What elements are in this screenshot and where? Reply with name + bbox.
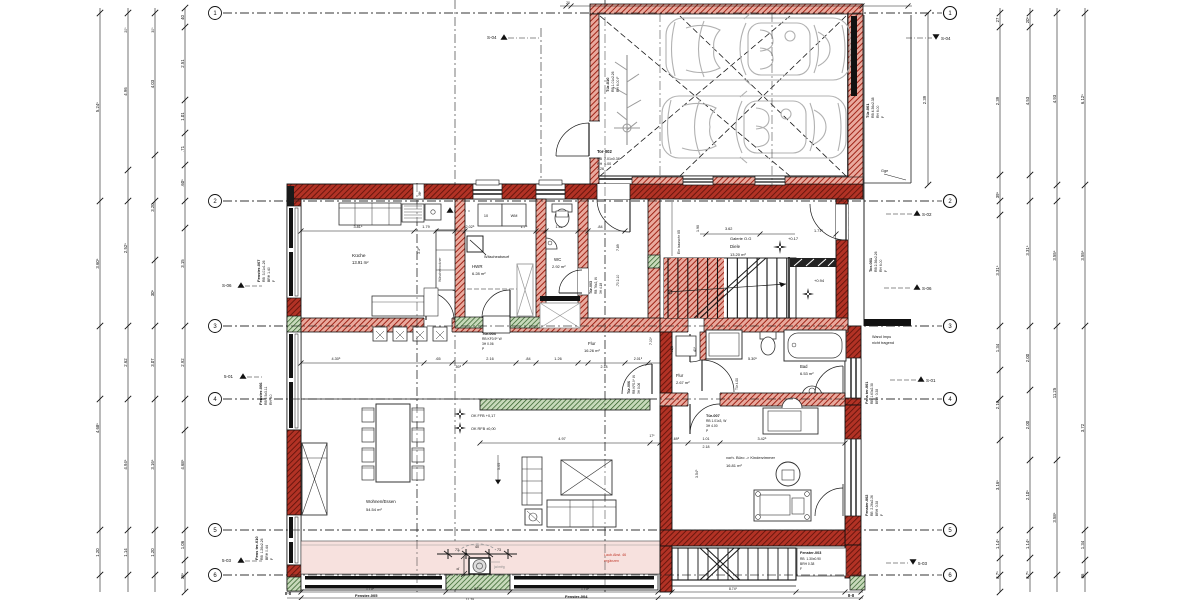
svg-text:3.31⁵: 3.31⁵ (1025, 245, 1030, 255)
svg-text:3.62: 3.62 (725, 227, 732, 231)
svg-text:8.74⁵: 8.74⁵ (474, 587, 483, 591)
svg-text:3.07: 3.07 (150, 358, 155, 367)
svg-text:RH 6.00: RH 6.00 (876, 105, 880, 118)
svg-text:Tür-001: Tür-001 (865, 103, 870, 118)
svg-text:1.26: 1.26 (554, 357, 561, 361)
svg-text:2.67 m²: 2.67 m² (676, 380, 690, 385)
svg-text:13.20 m²: 13.20 m² (730, 252, 746, 257)
svg-text:Wäschetrockner: Wäschetrockner (438, 257, 442, 282)
svg-text:6.28 m²: 6.28 m² (472, 271, 486, 276)
svg-text:5.24⁵: 5.24⁵ (95, 102, 100, 112)
svg-text:1.34: 1.34 (995, 343, 1000, 352)
svg-text:.71: .71 (180, 145, 185, 152)
svg-text:1.01: 1.01 (703, 437, 710, 441)
svg-text:1.01: 1.01 (180, 112, 185, 121)
svg-text:5-01: 5-01 (224, 374, 234, 379)
svg-text:8,: 8, (456, 567, 460, 570)
svg-text:3.55⁵: 3.55⁵ (1080, 250, 1085, 260)
svg-text:Wand Impu: Wand Impu (872, 335, 891, 339)
svg-text:27: 27 (995, 17, 1000, 22)
svg-text:3.60⁵: 3.60⁵ (95, 258, 100, 268)
svg-text:BRH 0.38: BRH 0.38 (875, 501, 879, 516)
svg-text:RB 2.26x2.26: RB 2.26x2.26 (870, 495, 874, 516)
svg-text:5.30⁵: 5.30⁵ (748, 357, 757, 361)
svg-text:F: F (272, 280, 276, 282)
svg-text:4.03: 4.03 (150, 79, 155, 88)
svg-text:Wäscheabwurf: Wäscheabwurf (484, 255, 510, 259)
svg-text:30⁵: 30⁵ (150, 290, 155, 297)
svg-text:6.12⁵: 6.12⁵ (1080, 94, 1085, 104)
svg-text:II-II: II-II (848, 593, 854, 598)
svg-text:8.7⁵: 8.7⁵ (995, 571, 1000, 579)
svg-text:Fens ter-001: Fens ter-001 (865, 382, 869, 404)
svg-text:RB 1.26x2.26: RB 1.26x2.26 (260, 538, 264, 560)
svg-text:Tür-004: Tür-004 (482, 332, 497, 336)
svg-text:20⁵: 20⁵ (1025, 17, 1030, 24)
svg-text:WM: WM (511, 214, 518, 218)
svg-text:RB 4.36x2.38: RB 4.36x2.38 (871, 97, 875, 118)
svg-text:8.7⁵: 8.7⁵ (1025, 571, 1030, 579)
svg-text:3.55⁵: 3.55⁵ (1052, 250, 1057, 260)
svg-text:30⁵: 30⁵ (151, 27, 155, 33)
svg-text:3.20: 3.20 (150, 203, 155, 212)
svg-text:13.91 m²: 13.91 m² (352, 260, 369, 265)
svg-text:2.01⁵: 2.01⁵ (634, 357, 643, 361)
svg-text:3.72: 3.72 (1080, 423, 1085, 432)
svg-text:5-05: 5-05 (497, 463, 501, 470)
svg-text:Flur: Flur (588, 341, 596, 346)
svg-text:2.10: 2.10 (995, 400, 1000, 409)
svg-text:2.92 m²: 2.92 m² (552, 264, 566, 269)
svg-text:6.53 m²: 6.53 m² (800, 371, 814, 376)
svg-text:RB 1.01x3, W: RB 1.01x3, W (706, 419, 727, 423)
svg-text:73⁳: 73⁳ (455, 548, 459, 552)
svg-text:Küche: Küche (352, 253, 366, 259)
svg-text:Tür 4.00: Tür 4.00 (735, 378, 739, 390)
svg-text:36⁵: 36⁵ (180, 573, 185, 580)
svg-text:F: F (881, 116, 885, 118)
svg-text:1.71⁵: 1.71⁵ (814, 229, 823, 233)
svg-text:40: 40 (475, 545, 479, 549)
svg-text:Fenster-007: Fenster-007 (256, 259, 261, 282)
svg-text:Diele: Diele (730, 244, 741, 249)
svg-text:S-02: S-02 (922, 212, 932, 217)
svg-text:nicht tragend: nicht tragend (872, 341, 894, 345)
svg-text:3H 0.06: 3H 0.06 (637, 383, 641, 394)
svg-text:20⁵: 20⁵ (124, 27, 128, 33)
svg-text:RB KF0.9⁵ W: RB KF0.9⁵ W (632, 375, 636, 394)
svg-text:4.68⁵: 4.68⁵ (95, 423, 100, 433)
svg-text:3.42⁵: 3.42⁵ (758, 437, 767, 441)
svg-text:.84: .84 (597, 225, 602, 229)
svg-text:Tür-003: Tür-003 (589, 281, 593, 294)
svg-text:OK RFB ±0,00: OK RFB ±0,00 (471, 427, 496, 431)
svg-text:BRH 1.40: BRH 1.40 (267, 267, 271, 282)
svg-text:7.89: 7.89 (616, 244, 620, 251)
svg-text:ergänzen: ergänzen (604, 559, 619, 563)
svg-text:2.92: 2.92 (180, 358, 185, 367)
svg-text:40⁵: 40⁵ (693, 346, 697, 352)
svg-text:1.14⁵: 1.14⁵ (1025, 539, 1030, 549)
svg-text:1.20: 1.20 (95, 548, 100, 557)
svg-text:Fenster-003: Fenster-003 (800, 551, 821, 555)
svg-text:5-03: 5-03 (918, 561, 928, 566)
svg-text:3.16⁵: 3.16⁵ (150, 459, 155, 469)
svg-text:(ai mêg: (ai mêg (494, 565, 505, 569)
svg-text:4.97: 4.97 (558, 437, 565, 441)
svg-text:3.3⁸: 3.3⁸ (417, 247, 421, 254)
svg-text:RB 7.01x0.38: RB 7.01x0.38 (597, 157, 620, 161)
svg-text:1.14: 1.14 (123, 548, 128, 557)
svg-text:3H 4.18: 3H 4.18 (599, 283, 603, 294)
svg-text:5-03: 5-03 (222, 558, 232, 563)
svg-text:Fenster-002: Fenster-002 (865, 495, 869, 516)
svg-text:36⁰: 36⁰ (418, 190, 422, 196)
svg-text:Tür-007: Tür-007 (706, 414, 720, 418)
svg-text:1.79: 1.79 (422, 225, 429, 229)
svg-text:11.25: 11.25 (1052, 387, 1057, 398)
svg-text:73⁳: 73⁳ (497, 548, 501, 552)
svg-text:7.26: 7.26 (597, 167, 604, 171)
svg-text:Fens ter-010: Fens ter-010 (254, 536, 259, 560)
svg-text:20: 20 (566, 1, 570, 5)
svg-text:RB 3.01x1.26: RB 3.01x1.26 (262, 260, 266, 282)
svg-text:1.34: 1.34 (1080, 540, 1085, 549)
svg-text:RB 1.63x2.38: RB 1.63x2.38 (870, 383, 874, 404)
svg-text:1.90: 1.90 (696, 225, 700, 232)
svg-text:F: F (884, 270, 888, 272)
svg-text:Fenster-005: Fenster-005 (355, 593, 378, 598)
svg-text:S-06: S-06 (922, 286, 932, 291)
svg-text:S-04: S-04 (487, 35, 497, 40)
svg-text:Fenster-006: Fenster-006 (258, 382, 263, 405)
svg-text:1.06: 1.06 (180, 540, 185, 549)
svg-text:.70 2.10: .70 2.10 (616, 275, 620, 287)
svg-text:7.00⁵: 7.00⁵ (649, 336, 653, 345)
svg-text:2.00: 2.00 (1025, 420, 1030, 429)
svg-text:+0.94: +0.94 (814, 278, 825, 283)
svg-text:Fenster-004: Fenster-004 (565, 594, 588, 599)
svg-text:3.81⁵: 3.81⁵ (354, 225, 363, 229)
svg-text:RB 2.36x2.26: RB 2.36x2.26 (874, 251, 878, 272)
svg-text:4.94⁵: 4.94⁵ (123, 459, 128, 469)
svg-text:2.39: 2.39 (995, 96, 1000, 105)
svg-text:2.39: 2.39 (922, 95, 927, 104)
svg-text:.60⁵: .60⁵ (180, 179, 185, 187)
svg-text:.50⁵: .50⁵ (455, 365, 462, 369)
svg-text:S-01: S-01 (926, 378, 936, 383)
svg-text:91,5: 91,5 (670, 346, 674, 352)
svg-text:S-06: S-06 (222, 283, 232, 288)
svg-text:3H 4.00: 3H 4.00 (706, 424, 718, 428)
svg-text:1.20: 1.20 (150, 548, 155, 557)
svg-text:Tor-001: Tor-001 (868, 257, 873, 272)
svg-text:4.96: 4.96 (123, 87, 128, 96)
svg-text:2.16: 2.16 (486, 357, 493, 361)
svg-text:RB 76x2, W: RB 76x2, W (594, 277, 598, 294)
svg-text:54.54 m²: 54.54 m² (366, 507, 382, 512)
svg-text:BRH 0.38: BRH 0.38 (800, 562, 814, 566)
svg-text:3.58⁵: 3.58⁵ (1052, 512, 1057, 522)
svg-text:4.53: 4.53 (1025, 96, 1030, 105)
svg-text:2.00: 2.00 (1025, 353, 1030, 362)
svg-text:Tür-010: Tür-010 (605, 77, 610, 92)
svg-text:10: 10 (484, 214, 488, 218)
svg-text:BRH 0.44: BRH 0.44 (265, 545, 269, 560)
svg-text:2.18: 2.18 (703, 445, 710, 449)
svg-text:4.93: 4.93 (1052, 94, 1057, 103)
svg-text:RB 2.5x3.11: RB 2.5x3.11 (264, 386, 268, 405)
svg-text:+0.17: +0.17 (788, 236, 799, 241)
svg-text:RB 1.01x2.26: RB 1.01x2.26 (611, 71, 615, 92)
svg-text:1.76⁵: 1.76⁵ (366, 587, 375, 591)
svg-text:RB 1.30x0.90: RB 1.30x0.90 (800, 557, 821, 561)
svg-text:3.15: 3.15 (180, 259, 185, 268)
svg-text:17⁵: 17⁵ (649, 434, 655, 438)
svg-text:2.52⁵: 2.52⁵ (123, 243, 128, 253)
svg-text:Laub.Abst. 46: Laub.Abst. 46 (604, 553, 626, 557)
svg-text:3H 0.06: 3H 0.06 (482, 342, 494, 346)
svg-text:.65: .65 (435, 357, 440, 361)
svg-text:Bad: Bad (800, 364, 808, 369)
svg-text:2.51: 2.51 (180, 59, 185, 68)
svg-text:S-04: S-04 (941, 36, 951, 41)
svg-text:8.74⁵: 8.74⁵ (729, 587, 738, 591)
svg-text:Gge: Gge (881, 169, 888, 173)
svg-text:F: F (270, 558, 274, 560)
svg-text:16.26 m²: 16.26 m² (584, 348, 600, 353)
svg-text:4.68⁵: 4.68⁵ (180, 459, 185, 469)
svg-text:3.31⁵: 3.31⁵ (995, 265, 1000, 275)
svg-text:RH 4.0: RH 4.0 (269, 394, 273, 405)
svg-text:RH 6.00 F: RH 6.00 F (616, 77, 620, 92)
svg-text:36: 36 (1080, 573, 1085, 578)
svg-text:2.62: 2.62 (123, 358, 128, 367)
svg-text:3.54⁵: 3.54⁵ (695, 469, 699, 478)
svg-text:Ein bauschr 05: Ein bauschr 05 (677, 230, 681, 254)
svg-text:F: F (880, 514, 884, 516)
svg-text:Flur: Flur (676, 373, 684, 378)
svg-text:HWR: HWR (472, 264, 483, 269)
svg-text:RH 6.00: RH 6.00 (879, 259, 883, 272)
svg-text:2.10⁵: 2.10⁵ (1025, 490, 1030, 500)
svg-text:3.16⁵: 3.16⁵ (995, 480, 1000, 490)
svg-text:1.14⁵: 1.14⁵ (995, 539, 1000, 549)
svg-text:RB KF0.9⁵ W: RB KF0.9⁵ W (482, 337, 503, 341)
svg-text:BRH 0.38: BRH 0.38 (875, 389, 879, 404)
svg-text:2.02⁵: 2.02⁵ (466, 225, 475, 229)
svg-text:OK FFB +0,17: OK FFB +0,17 (471, 414, 495, 418)
svg-text:Galerie O.G: Galerie O.G (730, 236, 751, 241)
svg-text:40: 40 (180, 15, 185, 20)
svg-text:.69⁵: .69⁵ (673, 437, 680, 441)
svg-text:vorh. Büro -> Kinderzimmer: vorh. Büro -> Kinderzimmer (726, 455, 776, 460)
svg-text:Wohnen/Essen: Wohnen/Essen (366, 499, 396, 504)
svg-text:2.18: 2.18 (601, 365, 608, 369)
svg-text:II-II: II-II (285, 591, 291, 596)
svg-text:1.76⁵: 1.76⁵ (581, 587, 590, 591)
svg-text:16.81 m²: 16.81 m² (726, 463, 742, 468)
svg-text:39⁵: 39⁵ (995, 192, 1000, 199)
svg-text:Tür-006: Tür-006 (627, 381, 631, 394)
svg-text:4.30⁵: 4.30⁵ (332, 357, 341, 361)
svg-text:F: F (800, 567, 802, 571)
svg-text:WC: WC (554, 257, 561, 262)
svg-text:.84: .84 (525, 357, 530, 361)
svg-text:RH 6.00: RH 6.00 (597, 162, 611, 166)
